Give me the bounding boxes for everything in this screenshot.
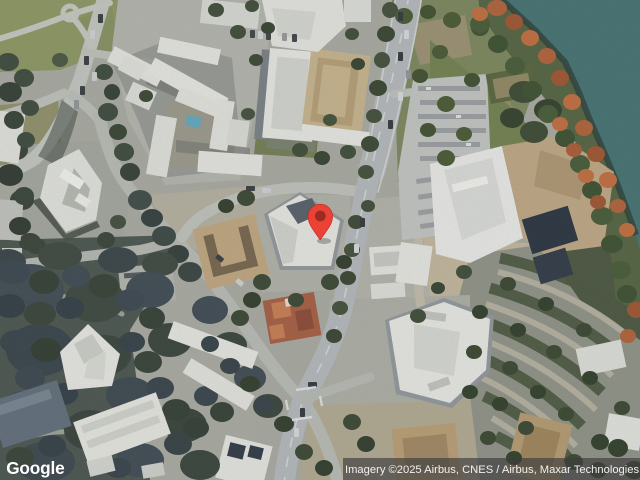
svg-text:Imagery ©2025 Airbus, CNES / A: Imagery ©2025 Airbus, CNES / Airbus, Max… <box>345 464 639 476</box>
svg-text:Google: Google <box>6 458 65 478</box>
